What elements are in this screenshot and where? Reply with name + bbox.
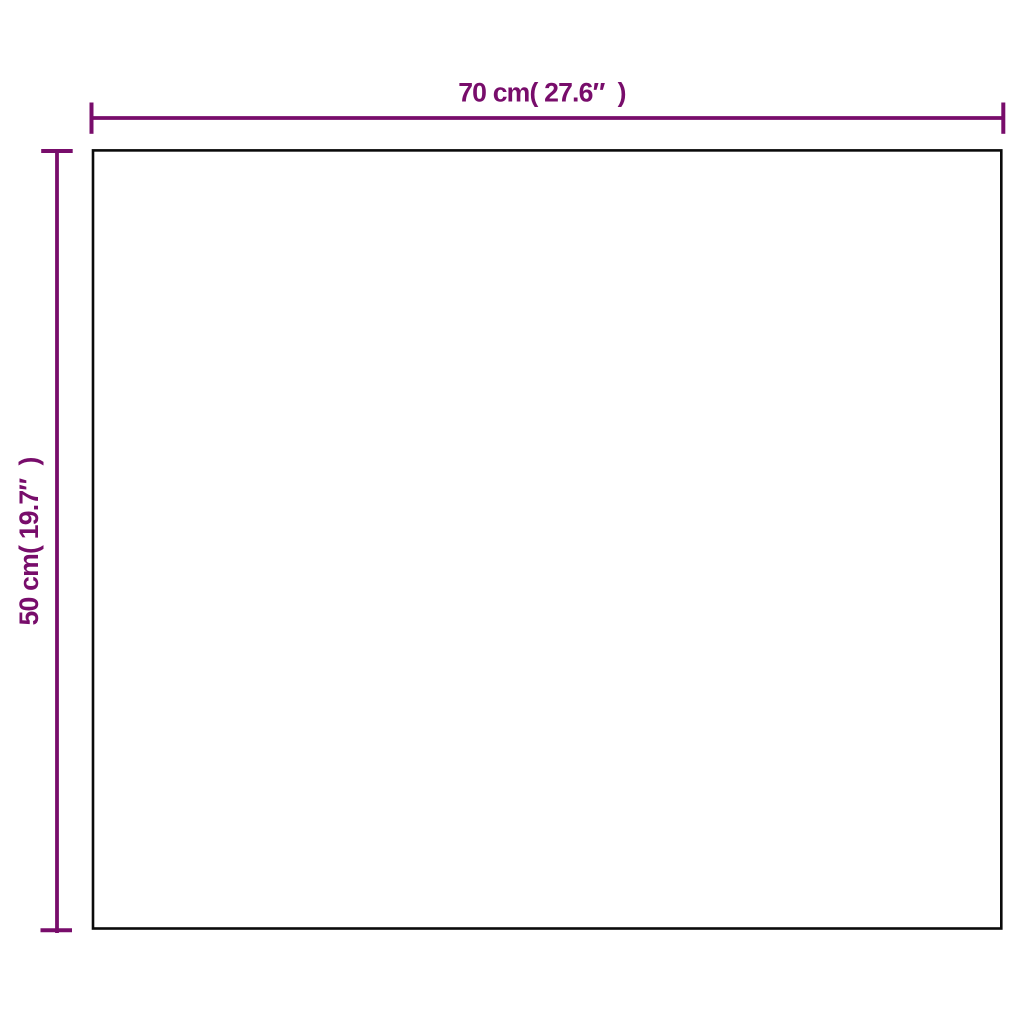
svg-text:70 cm( 27.6″ ): 70 cm( 27.6″ ) — [458, 78, 626, 108]
svg-text:50 cm( 19.7″ ): 50 cm( 19.7″ ) — [14, 457, 44, 626]
